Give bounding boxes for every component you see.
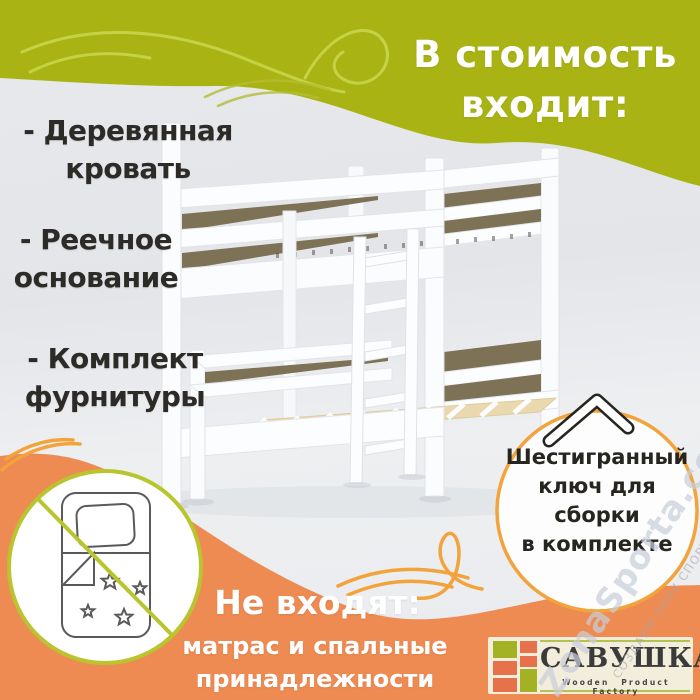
not-included-title: Не входят: — [195, 583, 440, 622]
not-included-line: принадлежности — [175, 663, 455, 696]
included-title: В стоимость входит: — [385, 30, 700, 130]
logo-squares — [493, 641, 537, 692]
hex-badge-line: ключ для — [497, 472, 697, 501]
hex-badge-line: сборки — [497, 501, 697, 530]
not-included-line: матрас и спальные — [175, 630, 455, 663]
item-line: - Комплект — [3, 340, 227, 378]
item-line: основание — [0, 259, 192, 297]
brand-name: САВУШКА — [540, 643, 692, 675]
no-bedding-badge — [9, 471, 201, 663]
brand-tagline: Wooden Product Factory — [540, 678, 692, 696]
included-item-hardware-kit: - Комплект фурнитуры — [3, 340, 227, 416]
not-included-details: матрас и спальные принадлежности — [175, 630, 455, 696]
bed-right-headboard — [425, 158, 559, 422]
bed-upper-guard-rail — [163, 170, 444, 300]
included-item-wooden-bed: - Деревянная кровать — [12, 112, 244, 188]
product-infographic: В стоимость входит: - Деревянная кровать… — [0, 0, 700, 700]
item-line: кровать — [12, 150, 244, 188]
item-line: - Деревянная — [12, 112, 244, 150]
hex-badge-line: Шестигранный — [497, 443, 697, 472]
bed-mid-support — [283, 211, 296, 431]
item-line: - Реечное — [0, 221, 192, 259]
included-title-line2: входит: — [385, 80, 700, 130]
item-line: фурнитуры — [3, 378, 227, 416]
hex-key-badge-text: Шестигранный ключ для сборки в комплекте — [497, 443, 697, 559]
hex-badge-line: в комплекте — [497, 530, 697, 559]
included-item-slatted-base: - Реечное основание — [0, 221, 192, 297]
included-title-line1: В стоимость — [385, 30, 700, 80]
